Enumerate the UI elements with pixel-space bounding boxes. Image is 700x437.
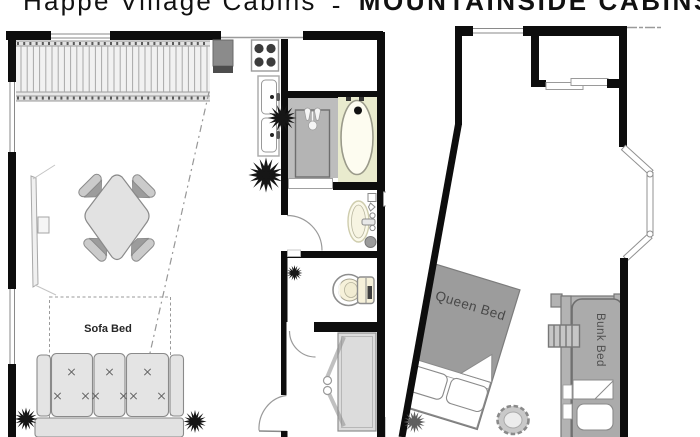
svg-text:Sofa Bed: Sofa Bed [84,323,132,335]
svg-text:Bunk Bed: Bunk Bed [594,313,606,367]
